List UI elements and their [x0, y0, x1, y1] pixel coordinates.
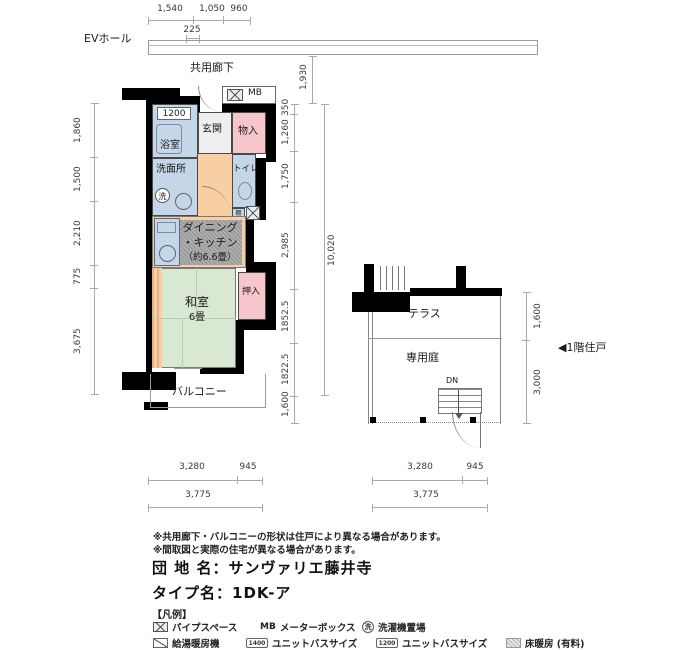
legend-unit-bath-1400-label: ユニットバスサイズ	[272, 636, 357, 650]
dim-right-1930: 1,930	[298, 50, 310, 104]
dim-left-2210: 2,210	[72, 201, 84, 265]
dim-line-1930	[312, 56, 313, 104]
closet-label: 押入	[242, 288, 260, 298]
fence-post	[370, 417, 376, 423]
note-2: ※間取図と実際の住宅が異なる場合があります。	[153, 542, 361, 556]
boundary-line	[368, 312, 369, 424]
balcony-label: バルコニー	[172, 386, 227, 398]
dim-tick	[90, 157, 98, 158]
dim-left-775: 775	[72, 265, 84, 288]
dim-left-1500: 1,500	[72, 157, 84, 201]
wall-segment	[352, 292, 410, 312]
wall-segment	[410, 288, 502, 296]
terrace-garden-divider	[368, 338, 502, 339]
legend-pipe-space: パイプスペース	[153, 620, 237, 634]
dim-top-1540: 1,540	[146, 4, 194, 14]
tatami-line	[182, 318, 183, 368]
washer-circle-icon: 洗	[362, 621, 374, 633]
dim-right-1750: 1,750	[280, 151, 292, 202]
floor-plan-page: 1,540 1,050 960 225 EVホール 共用廊下 MB 1200 浴…	[0, 0, 700, 650]
mb-label: MB	[248, 89, 262, 99]
window-line	[174, 368, 202, 369]
ev-hall-label: EVホール	[84, 33, 131, 45]
unit-bath-size-tag: 1200	[157, 107, 191, 120]
dim-bl-3280: 3,280	[168, 462, 216, 472]
dim-right-1852: 1852.5	[280, 289, 292, 343]
dim-line-right-total	[324, 104, 325, 396]
dim-tick	[90, 201, 98, 202]
dim-br-945: 945	[460, 462, 490, 472]
type-name-title: タイプ名：1DK-ア	[152, 582, 291, 603]
legend-unit-bath-1200-label: ユニットバスサイズ	[402, 636, 487, 650]
dim-line-225	[186, 38, 200, 39]
dim-right-1260: 1,260	[280, 114, 292, 151]
dim-right-10020: 10,020	[326, 104, 338, 396]
dim-br-3775: 3,775	[402, 490, 450, 500]
dim-line-br-total	[372, 507, 488, 508]
terrace-label: テラス	[408, 308, 441, 320]
dk-label-3: （約6.6畳）	[168, 253, 252, 263]
dim-line-br	[372, 480, 488, 481]
stairs-arrow-shaft	[458, 390, 459, 414]
washitsu-label: 和室	[162, 296, 232, 309]
legend-heater: 給湯暖房機	[153, 636, 220, 650]
dim-terrace-1600: 1,600	[532, 292, 544, 340]
toilet-bowl-icon	[238, 182, 252, 200]
pipe-space-icon	[227, 89, 243, 101]
legend-washer-place: 洗 洗濯機置場	[362, 620, 426, 634]
dim-left-3675: 3,675	[72, 288, 84, 395]
dim-top-225: 225	[180, 25, 204, 35]
dim-bl-3775: 3,775	[174, 490, 222, 500]
storage-label: 物入	[238, 126, 258, 137]
washitsu-size-label: 6畳	[162, 312, 232, 323]
tatami-line	[196, 268, 197, 318]
fence-hatch	[380, 266, 408, 290]
estate-name-title: 団 地 名：サンヴァリエ藤井寺	[152, 557, 372, 578]
wall-segment	[456, 266, 466, 290]
dim-right-1600: 1,600	[280, 382, 292, 426]
boundary-line	[500, 296, 501, 424]
toilet-label: トイレ	[233, 165, 259, 174]
dim-br-3280: 3,280	[396, 462, 444, 472]
dim-tick	[223, 16, 224, 24]
dim-tick	[90, 265, 98, 266]
dk-label-2: ・キッチン	[168, 237, 252, 249]
legend-unit-bath-1200: 1200 ユニットバスサイズ	[376, 636, 487, 650]
washer-place-icon: 洗	[155, 188, 170, 203]
wall-segment	[364, 264, 374, 294]
unit-bath-1200-icon: 1200	[376, 638, 398, 648]
fence-post	[420, 417, 426, 423]
dim-line-terrace	[526, 292, 527, 424]
ev-hall-inner-line	[149, 45, 537, 46]
ev-hall-slab	[148, 40, 538, 55]
legend-washer-label: 洗濯機置場	[378, 620, 426, 634]
dim-bl-945: 945	[233, 462, 263, 472]
heater-icon	[153, 638, 168, 648]
dim-right-2985: 2,985	[280, 202, 292, 289]
legend-heading: 【凡例】	[152, 606, 192, 621]
garden-boundary-dotted	[368, 422, 501, 423]
dim-line-bl	[148, 480, 263, 481]
first-floor-unit-pointer: ◀1階住戸	[558, 342, 606, 354]
dn-label: DN	[446, 377, 458, 386]
pipe-space-icon	[153, 622, 168, 632]
legend-floor-heating: 床暖房 (有料)	[506, 636, 585, 650]
entrance-door-arc	[198, 86, 223, 112]
dim-line-right-inner	[294, 104, 295, 424]
dim-garden-3000: 3,000	[532, 340, 544, 424]
boundary-line	[372, 312, 373, 424]
dim-tick	[462, 476, 463, 484]
dim-line-bl-total	[148, 507, 263, 508]
mb-abbrev: MB	[260, 622, 276, 632]
washroom-label: 洗面所	[156, 164, 186, 175]
wall-segment	[266, 268, 276, 328]
entry-door-arc	[452, 412, 481, 448]
pipe-space-icon	[246, 206, 260, 220]
dim-tick	[193, 16, 194, 24]
dim-left-1860: 1,860	[72, 103, 84, 157]
stairs-down	[438, 388, 482, 414]
dim-line-left	[94, 103, 95, 395]
legend-meter-box-label: メーターボックス	[280, 620, 356, 634]
sink-icon	[175, 193, 192, 210]
dim-top-960: 960	[224, 4, 254, 14]
wall-segment	[266, 104, 276, 162]
legend-floor-heating-label: 床暖房 (有料)	[525, 636, 585, 650]
dim-tick	[237, 476, 238, 484]
dk-label-1: ダイニング	[168, 222, 252, 234]
garden-label: 専用庭	[406, 352, 439, 364]
dim-tick	[90, 288, 98, 289]
entrance-label: 玄関	[202, 124, 222, 135]
entry-door-leaf	[480, 412, 481, 448]
bathroom-label: 浴室	[160, 140, 180, 151]
note-1: ※共用廊下・バルコニーの形状は住戸により異なる場合があります。	[153, 529, 446, 543]
legend-unit-bath-1400: 1400 ユニットバスサイズ	[246, 636, 357, 650]
floor-heating-icon	[506, 638, 521, 648]
legend-heater-label: 給湯暖房機	[172, 636, 220, 650]
dim-line-top	[148, 20, 251, 21]
legend-meter-box: MB メーターボックス	[260, 620, 356, 634]
corridor-label: 共用廊下	[190, 62, 234, 74]
legend-pipe-space-label: パイプスペース	[172, 620, 237, 634]
unit-bath-1400-icon: 1400	[246, 638, 268, 648]
dim-tick	[522, 340, 530, 341]
